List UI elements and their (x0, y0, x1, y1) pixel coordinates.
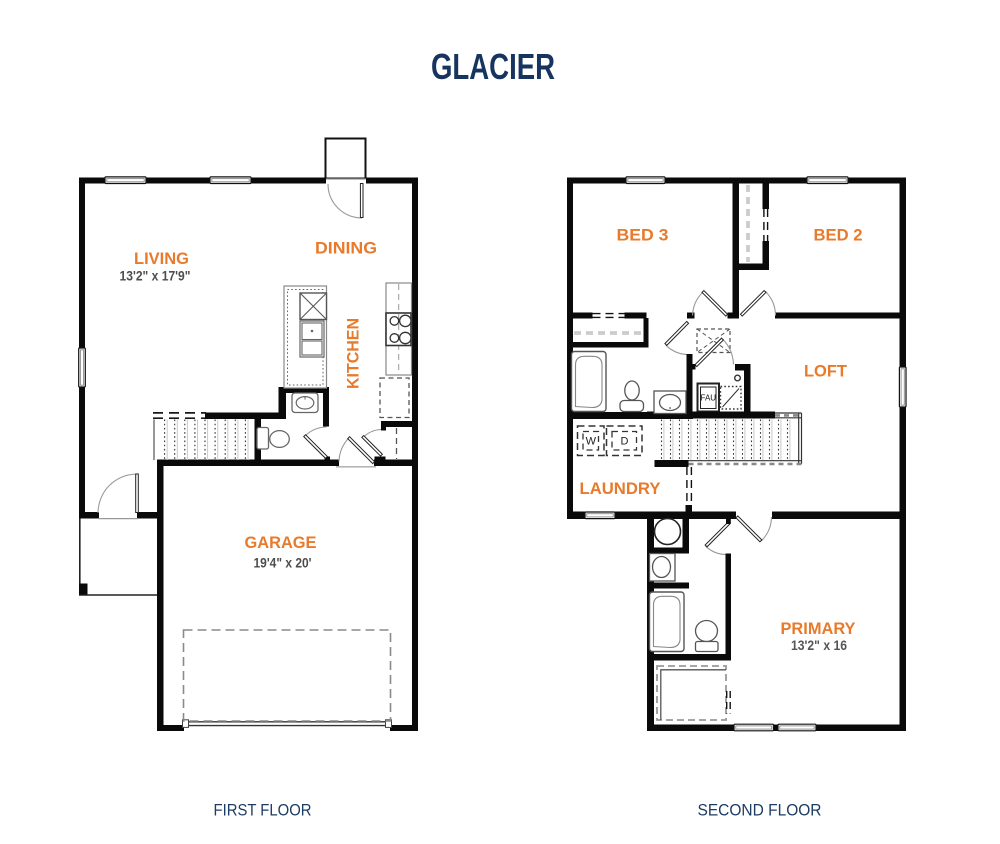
svg-text:13'2" x 16: 13'2" x 16 (791, 638, 847, 653)
svg-text:KITCHEN: KITCHEN (344, 318, 363, 389)
svg-text:W: W (586, 436, 597, 448)
svg-text:LAUNDRY: LAUNDRY (580, 479, 662, 498)
svg-text:GLACIER: GLACIER (431, 46, 555, 87)
svg-text:13'2" x 17'9": 13'2" x 17'9" (120, 269, 191, 284)
svg-text:BED 2: BED 2 (814, 226, 863, 245)
svg-text:LIVING: LIVING (134, 249, 189, 268)
svg-text:FIRST FLOOR: FIRST FLOOR (214, 801, 312, 820)
svg-text:D: D (621, 436, 629, 448)
svg-text:FAU: FAU (701, 394, 717, 403)
svg-text:PRIMARY: PRIMARY (781, 619, 857, 638)
svg-text:DINING: DINING (315, 239, 377, 258)
svg-text:19'4" x 20': 19'4" x 20' (254, 556, 312, 571)
svg-text:SECOND FLOOR: SECOND FLOOR (698, 801, 822, 820)
svg-text:BED 3: BED 3 (617, 226, 669, 245)
svg-text:LOFT: LOFT (804, 362, 848, 381)
svg-text:GARAGE: GARAGE (245, 533, 317, 552)
